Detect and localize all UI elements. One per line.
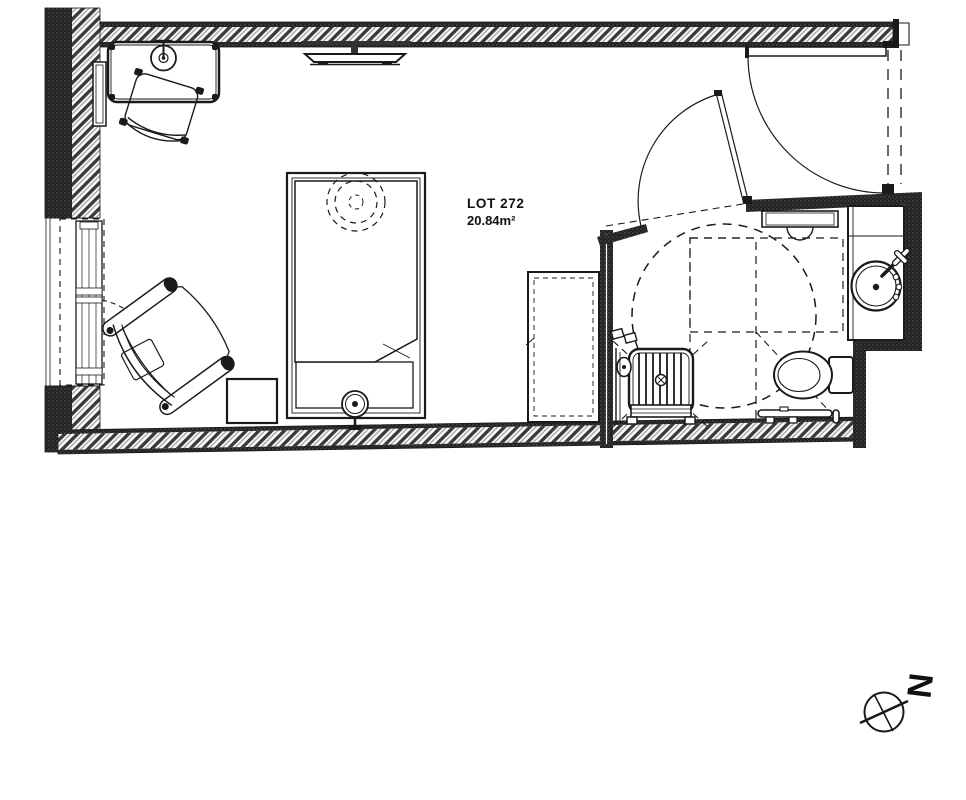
floor-plan-page: LOT 272 20.84m² N xyxy=(0,0,966,800)
entrance-door xyxy=(745,41,901,194)
north-arrow-axis xyxy=(874,694,893,731)
lot-number-text: LOT 272 xyxy=(467,196,524,211)
bathroom-door xyxy=(606,90,752,226)
shower-bench-bar xyxy=(631,405,691,417)
shower-seat-slatted xyxy=(627,349,695,424)
towel-rail xyxy=(762,211,838,240)
wall-end-cap xyxy=(893,19,899,48)
washbasin xyxy=(852,262,902,311)
bath-wall-angled xyxy=(597,224,648,246)
north-letter: N xyxy=(899,671,940,700)
basin-drain xyxy=(873,284,879,290)
wall-bottom xyxy=(58,417,862,454)
shower-drain xyxy=(656,375,667,386)
north-arrow: N xyxy=(860,671,940,731)
lot-area-text: 20.84m² xyxy=(467,213,516,228)
armchair-seat xyxy=(116,278,238,403)
bed xyxy=(287,173,425,430)
door-closed-position-dashed xyxy=(606,204,743,226)
armchair xyxy=(97,271,243,420)
wall-tv xyxy=(301,41,411,65)
bathroom-door-leaf xyxy=(717,93,749,202)
wardrobe xyxy=(526,272,599,422)
bathroom-door-swing-arc xyxy=(638,94,719,226)
bath-wall-east-upper xyxy=(905,196,922,345)
entrance-door-swing-arc xyxy=(748,56,885,193)
doorway-corner-cap xyxy=(882,184,894,194)
wall-sconce xyxy=(342,391,368,430)
bathroom-door-hinge xyxy=(743,196,752,204)
radiator xyxy=(93,62,106,126)
bath-wall-east-lower xyxy=(853,345,866,448)
side-table xyxy=(227,379,277,423)
toilet xyxy=(774,352,853,399)
entrance-door-hinge xyxy=(883,41,893,48)
floor-plan-drawing: LOT 272 20.84m² N xyxy=(0,0,966,800)
mattress xyxy=(295,181,417,362)
lot-label: LOT 272 20.84m² xyxy=(467,196,524,228)
wall-left-upper xyxy=(45,8,100,218)
door-frame-right xyxy=(899,23,909,45)
shower-valve xyxy=(611,329,624,340)
entrance-door-leaf xyxy=(748,47,886,56)
